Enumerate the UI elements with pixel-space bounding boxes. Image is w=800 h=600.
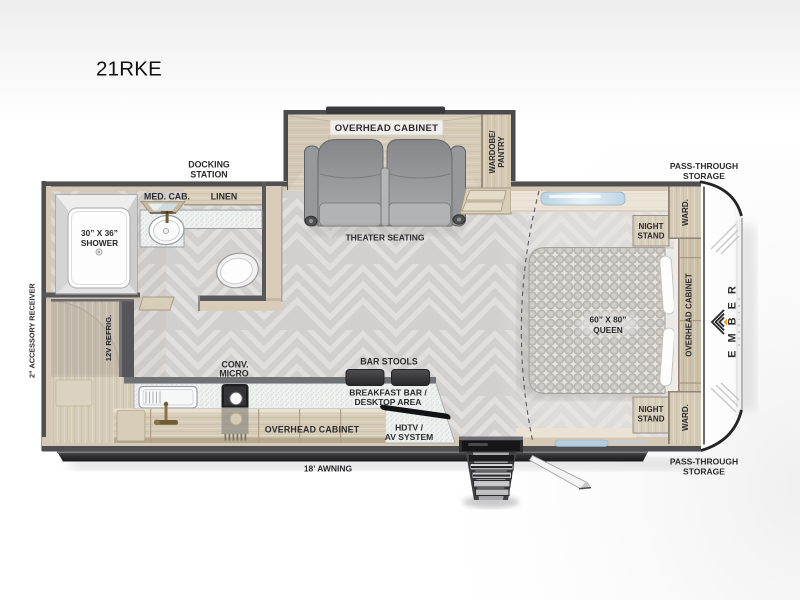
svg-text:30” X 36”: 30” X 36” bbox=[81, 228, 118, 238]
svg-text:THEATER SEATING: THEATER SEATING bbox=[345, 233, 424, 243]
svg-text:DESKTOP AREA: DESKTOP AREA bbox=[355, 397, 422, 407]
svg-text:SHOWER: SHOWER bbox=[81, 238, 118, 248]
svg-text:MICRO: MICRO bbox=[219, 369, 248, 379]
svg-text:STATION: STATION bbox=[190, 170, 227, 180]
svg-text:NIGHT: NIGHT bbox=[639, 222, 664, 231]
svg-text:2” ACCESSORY RECEIVER: 2” ACCESSORY RECEIVER bbox=[28, 283, 37, 378]
svg-text:AV SYSTEM: AV SYSTEM bbox=[385, 432, 434, 442]
svg-text:STAND: STAND bbox=[638, 232, 665, 241]
svg-text:OVERLAND: OVERLAND bbox=[737, 294, 741, 347]
svg-text:STORAGE: STORAGE bbox=[683, 467, 725, 477]
svg-text:OVERHEAD CABINET: OVERHEAD CABINET bbox=[685, 273, 694, 357]
svg-text:12V REFRIG.: 12V REFRIG. bbox=[104, 315, 113, 361]
svg-text:DOCKING: DOCKING bbox=[188, 160, 230, 170]
svg-text:STAND: STAND bbox=[638, 415, 665, 424]
svg-text:21RKE: 21RKE bbox=[96, 58, 162, 81]
svg-text:PASS-THROUGH: PASS-THROUGH bbox=[670, 161, 738, 171]
svg-text:WARD.: WARD. bbox=[681, 404, 690, 431]
svg-text:LINEN: LINEN bbox=[211, 192, 237, 202]
svg-text:STORAGE: STORAGE bbox=[683, 171, 725, 181]
svg-text:HDTV /: HDTV / bbox=[395, 423, 424, 433]
svg-text:BAR STOOLS: BAR STOOLS bbox=[360, 357, 418, 367]
svg-text:OVERHEAD CABINET: OVERHEAD CABINET bbox=[335, 123, 439, 134]
svg-text:60” X 80”: 60” X 80” bbox=[590, 315, 627, 325]
svg-text:WARD.: WARD. bbox=[681, 199, 690, 226]
svg-text:18’ AWNING: 18’ AWNING bbox=[304, 464, 353, 474]
svg-text:MED. CAB.: MED. CAB. bbox=[144, 192, 190, 202]
svg-text:BREAKFAST BAR /: BREAKFAST BAR / bbox=[349, 388, 427, 398]
svg-text:QUEEN: QUEEN bbox=[593, 325, 623, 335]
svg-text:OVERHEAD CABINET: OVERHEAD CABINET bbox=[265, 425, 360, 435]
svg-text:NIGHT: NIGHT bbox=[639, 405, 664, 414]
svg-text:PASS-THROUGH: PASS-THROUGH bbox=[670, 457, 738, 467]
